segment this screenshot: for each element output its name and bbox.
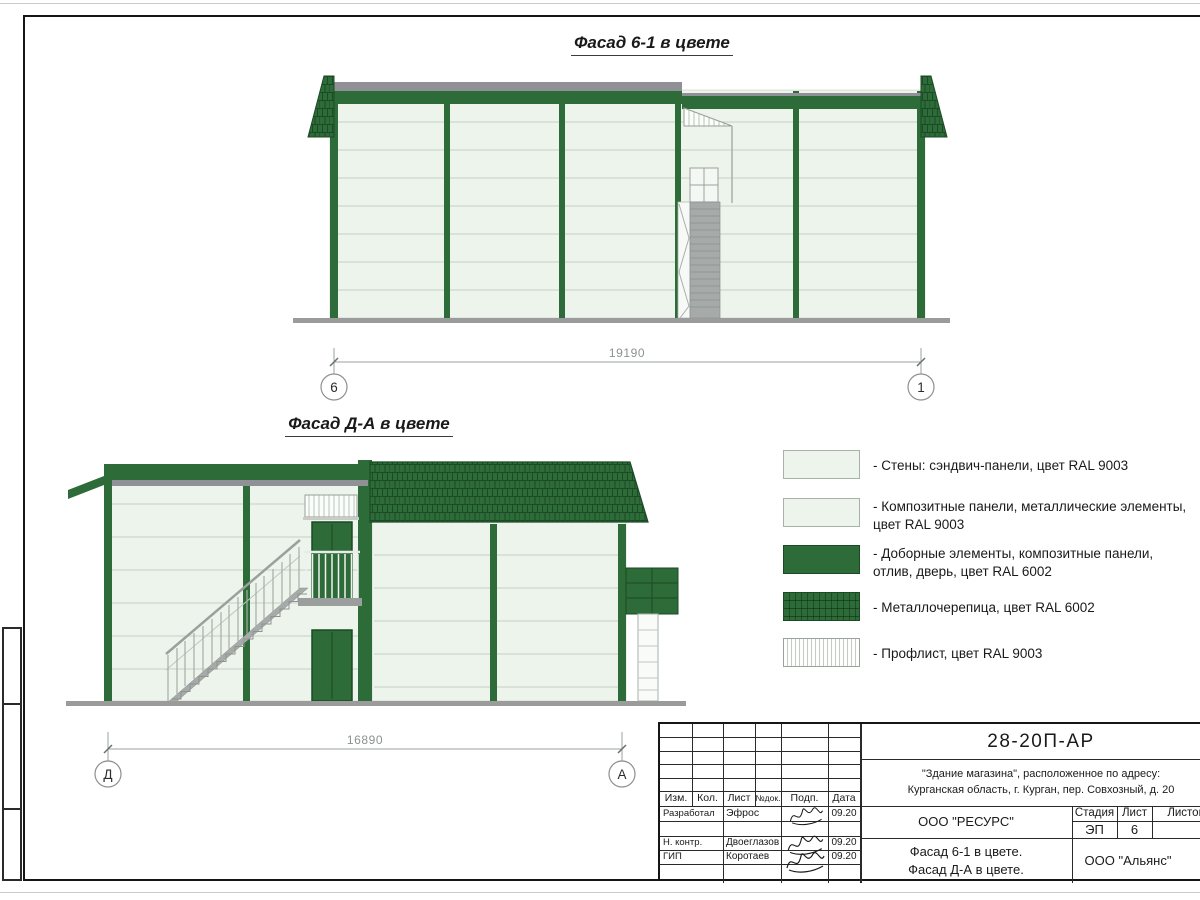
dimension-value: 16890 [347, 733, 383, 747]
right-annex [626, 568, 678, 701]
axis-label-left: 6 [330, 380, 338, 395]
margin-box-1 [2, 627, 22, 705]
axis-label-left: Д [103, 767, 112, 782]
legend-item-trim: - Доборные элементы, композитные панели,… [783, 545, 1191, 581]
title-block: Изм. Кол. Лист №док. Подп. Дата Разработ… [658, 722, 1200, 881]
legend-label: - Доборные элементы, композитные панели,… [873, 545, 1191, 581]
signature-developer [784, 802, 828, 828]
roof-end-right [921, 76, 947, 137]
margin-box-2 [2, 703, 22, 810]
col-data: Дата [828, 791, 860, 806]
col-ndok: №док. [755, 791, 781, 806]
axis-label-right: 1 [917, 380, 925, 395]
door-canopy [305, 495, 357, 517]
row-date-ncontrol: 09.20 [828, 836, 860, 850]
sheets-label: Листов [1152, 806, 1200, 821]
eave-overhang [68, 476, 104, 499]
col-list: Лист [723, 791, 755, 806]
row-name-developer: Эфрос [726, 806, 780, 821]
axis-label-right: А [617, 767, 626, 782]
metal-tile-roof [370, 462, 648, 522]
sheet-title-line2: Фасад Д-А в цвете. [860, 861, 1072, 879]
col-kol: Кол. [692, 791, 723, 806]
row-role-ncontrol: Н. контр. [663, 836, 723, 850]
stage-label: Стадия [1072, 806, 1117, 821]
row-date-developer: 09.20 [828, 806, 860, 821]
margin-box-3 [2, 808, 22, 881]
legend-swatch-profiled-sheet [783, 638, 860, 667]
facade1-title: Фасад 6-1 в цвете [532, 33, 772, 56]
sheet-label: Лист [1117, 806, 1152, 821]
facade-d-a-drawing: 16890 Д А [60, 440, 710, 800]
legend-item-metal-tile: - Металлочерепица, цвет RAL 6002 [783, 592, 1191, 621]
legend-item-composite: - Композитные панели, металлические элем… [783, 498, 1191, 534]
sheet-title-line1: Фасад 6-1 в цвете. [860, 843, 1072, 861]
legend-label: - Профлист, цвет RAL 9003 [873, 638, 1191, 667]
ground-line [66, 701, 686, 706]
col-izm: Изм. [660, 791, 692, 806]
landing-slab [298, 598, 362, 606]
dimension-16890: 16890 Д А [95, 732, 635, 787]
doc-number: 28-20П-АР [860, 724, 1200, 759]
contractor-org: ООО "Альянс" [1072, 838, 1184, 883]
legend: - Стены: сэндвич-панели, цвет RAL 9003 -… [783, 450, 1193, 690]
legend-swatch-composite-panel [783, 498, 860, 527]
legend-label: - Стены: сэндвич-панели, цвет RAL 9003 [873, 450, 1191, 479]
roof-end-left [308, 76, 334, 137]
design-org: ООО "РЕСУРС" [860, 806, 1072, 838]
sheet-number: 6 [1117, 821, 1152, 838]
stage-value: ЭП [1072, 821, 1117, 838]
legend-item-profiled-sheet: - Профлист, цвет RAL 9003 [783, 638, 1191, 667]
annex-column [638, 614, 658, 701]
legend-swatch-trim-green [783, 545, 860, 574]
signature-gip [782, 846, 828, 876]
row-name-gip: Коротаев [726, 850, 782, 864]
ground-line [293, 318, 950, 323]
page-edge-bottom [0, 892, 1200, 893]
facade2-title: Фасад Д-А в цвете [249, 414, 489, 437]
dimension-19190: 19190 6 1 [321, 346, 934, 400]
canopy-slab [303, 517, 359, 520]
legend-label: - Композитные панели, металлические элем… [873, 498, 1191, 534]
facade-6-1-drawing: 19190 6 1 [290, 60, 960, 405]
row-name-ncontrol: Двоеглазов [726, 836, 782, 850]
stair-steps-band [690, 202, 720, 318]
page-edge-top [0, 3, 1200, 4]
legend-swatch-metal-tile [783, 592, 860, 621]
row-role-gip: ГИП [663, 850, 723, 864]
project-line2: Курганская область, г. Курган, пер. Совх… [865, 782, 1200, 798]
drawing-sheet: Фасад 6-1 в цвете [0, 0, 1200, 900]
dimension-value: 19190 [609, 346, 645, 360]
project-line1: "Здание магазина", расположенное по адре… [865, 766, 1200, 782]
legend-label: - Металлочерепица, цвет RAL 6002 [873, 592, 1191, 621]
legend-swatch-sandwich-panel [783, 450, 860, 479]
legend-item-walls: - Стены: сэндвич-панели, цвет RAL 9003 [783, 450, 1191, 479]
building-walls [330, 90, 925, 318]
row-role-developer: Разработал [663, 806, 723, 821]
row-date-gip: 09.20 [828, 850, 860, 864]
